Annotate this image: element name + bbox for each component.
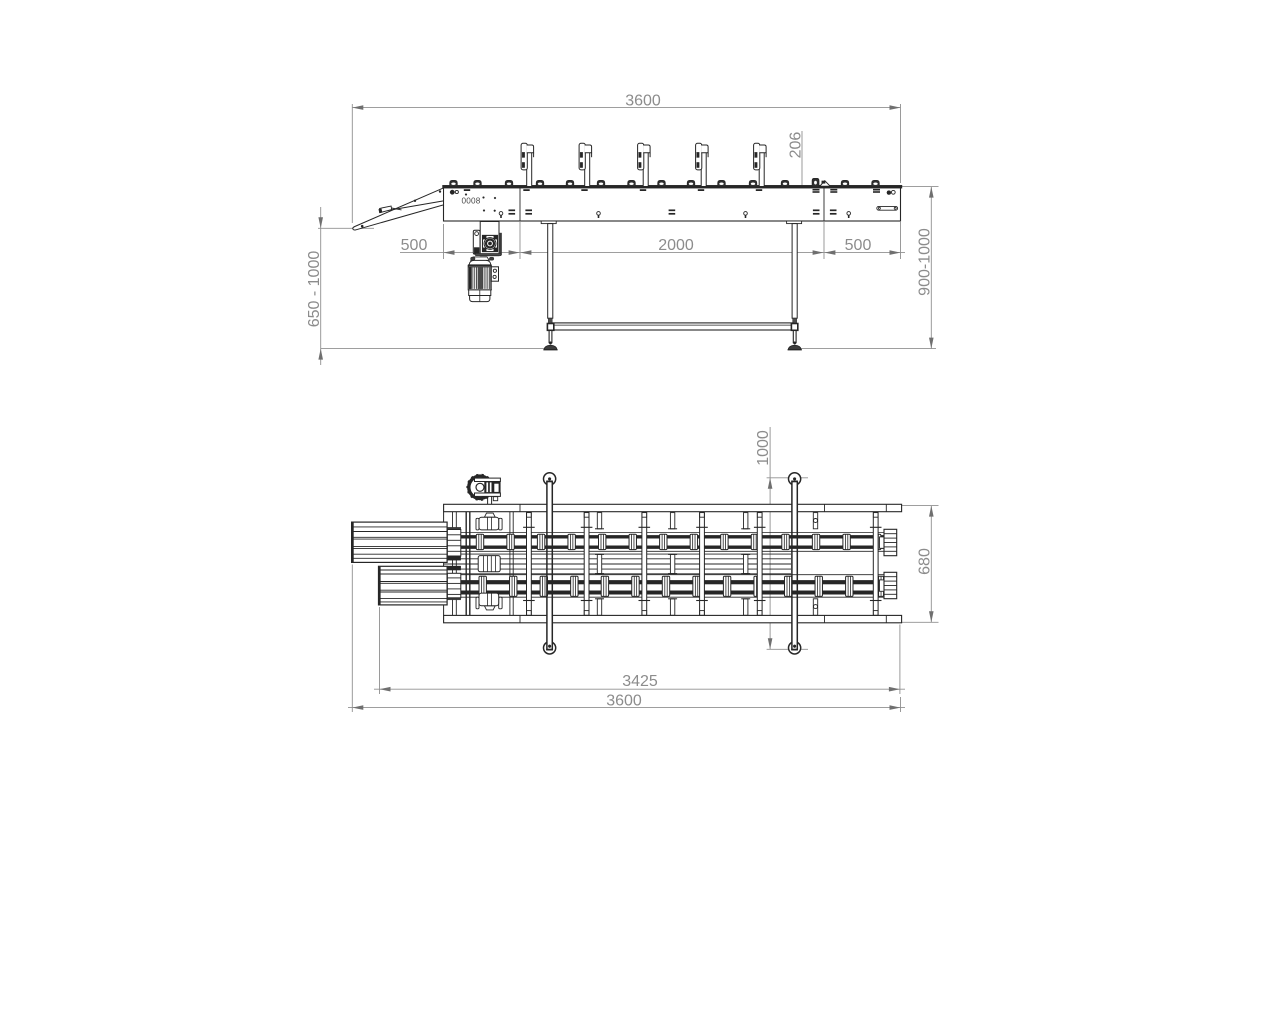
svg-text:1000: 1000 (755, 430, 772, 466)
svg-text:0008: 0008 (461, 197, 480, 206)
svg-text:680: 680 (916, 548, 933, 575)
svg-text:3425: 3425 (622, 673, 658, 690)
svg-text:2000: 2000 (658, 237, 694, 254)
svg-text:500: 500 (845, 237, 872, 254)
svg-text:206: 206 (788, 132, 805, 159)
svg-text:900-1000: 900-1000 (916, 228, 933, 296)
svg-text:500: 500 (401, 237, 428, 254)
svg-text:3600: 3600 (606, 693, 642, 710)
svg-text:3600: 3600 (625, 93, 661, 110)
svg-text:650 - 1000: 650 - 1000 (306, 251, 323, 328)
